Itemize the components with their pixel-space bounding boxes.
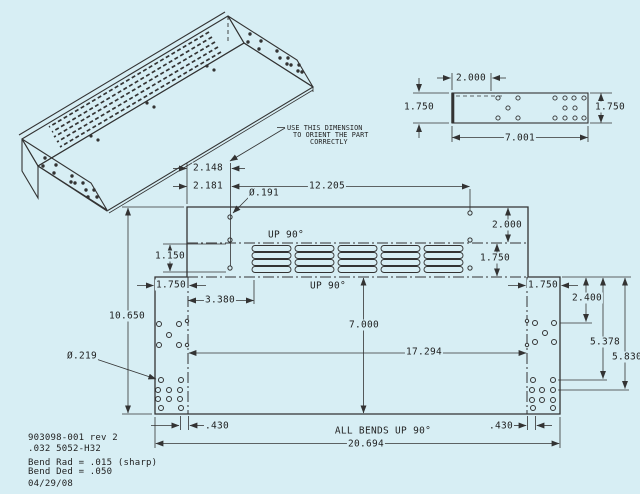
dim-hole-offset-right: .430 (488, 421, 514, 432)
flat-pattern-louvers (252, 246, 463, 273)
hole-callout-small: Ø.191 (248, 188, 280, 199)
orient-note-line3: CORRECTLY (310, 138, 348, 146)
title-material: .032 5052-H32 (28, 444, 101, 454)
dim-hole-row-c: 5.830 (611, 352, 640, 363)
isometric-view (19, 12, 313, 213)
title-date: 04/29/08 (28, 479, 73, 489)
dim-louver-offset: 3.380 (204, 295, 236, 306)
dim-overall-height: 10.650 (108, 311, 146, 322)
detail-dim-width-top: 2.000 (455, 73, 487, 84)
bend-note-top: UP 90° (268, 230, 304, 241)
cad-drawing-sheet: USE THIS DIMENSION TO ORIENT THE PART CO… (0, 0, 640, 494)
dim-hole-row-a: 2.400 (571, 293, 603, 304)
detail-dim-width-bottom: 7.001 (504, 133, 536, 144)
bend-note-bottom: UP 90° (310, 281, 346, 292)
all-bends-note: ALL BENDS UP 90° (335, 426, 431, 437)
title-part-number: 903098-001 rev 2 (28, 433, 118, 443)
flat-pattern-holes (156, 211, 557, 411)
dim-louver-strip: 1.750 (479, 253, 511, 264)
dim-left-flap: 1.750 (155, 280, 187, 291)
detail-dim-height-right: 1.750 (594, 102, 626, 113)
dim-panel-height: 7.000 (348, 320, 380, 331)
dim-hole-span: 12.205 (308, 181, 346, 192)
title-bend-ded: Bend Ded = .050 (28, 467, 112, 477)
drawing-linework (0, 0, 640, 494)
dim-hole-offset-left: .430 (204, 421, 230, 432)
dim-edge-to-hole-b: 2.181 (192, 181, 224, 192)
hole-callout-large: Ø.219 (66, 351, 98, 362)
dim-hole-row-b: 5.378 (589, 337, 621, 348)
detail-dim-height-left: 1.750 (403, 102, 435, 113)
dim-bend-span: 17.294 (405, 347, 443, 358)
dim-louver-holes: 1.150 (154, 251, 186, 262)
dim-right-flap: 1.750 (527, 280, 559, 291)
dim-overall-width: 20.694 (347, 439, 385, 450)
flat-pattern-outline (155, 207, 560, 414)
dim-edge-to-hole-a: 2.148 (192, 163, 224, 174)
dim-top-flange: 2.000 (491, 220, 523, 231)
